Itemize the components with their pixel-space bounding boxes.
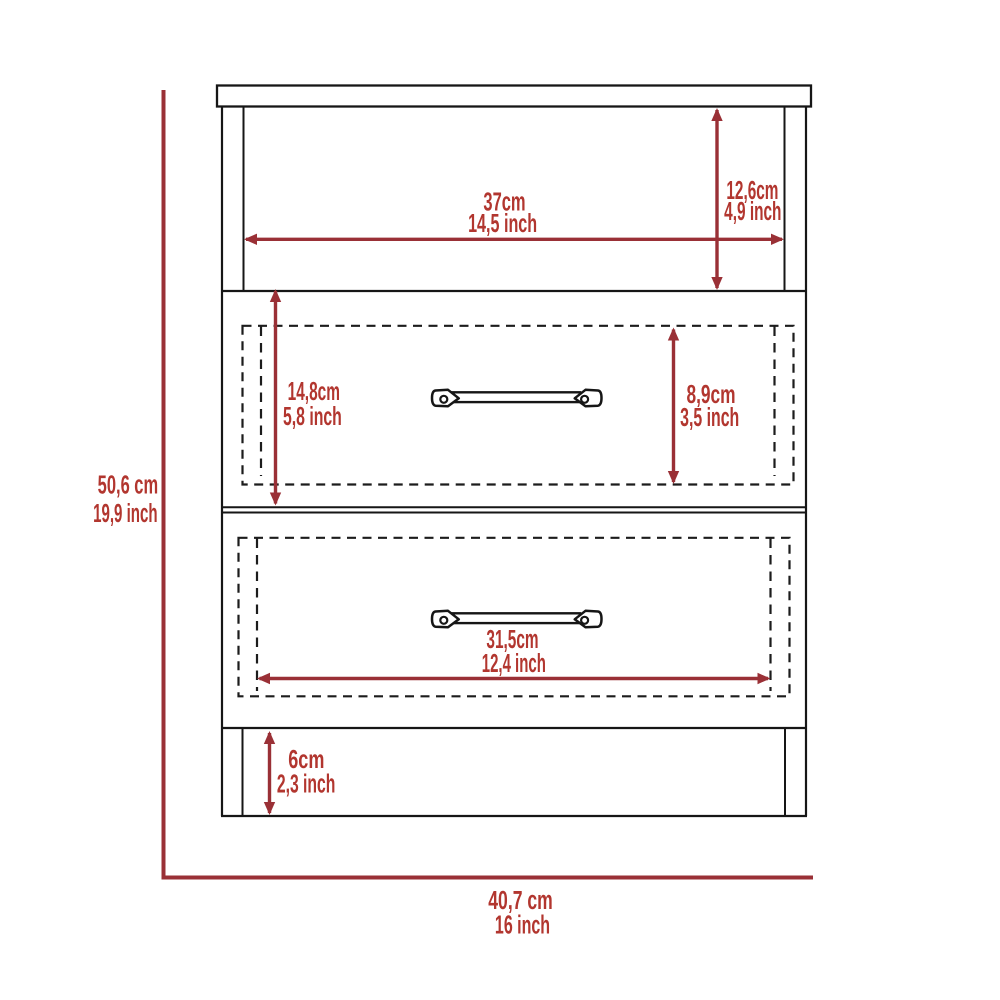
svg-text:3,5 inch: 3,5 inch	[680, 402, 739, 432]
svg-text:4,9 inch: 4,9 inch	[724, 197, 781, 226]
svg-text:2,3 inch: 2,3 inch	[277, 768, 336, 798]
svg-text:14,5 inch: 14,5 inch	[468, 208, 537, 238]
svg-text:16 inch: 16 inch	[495, 909, 550, 939]
svg-text:5,8 inch: 5,8 inch	[283, 401, 342, 431]
svg-text:50,6 cm: 50,6 cm	[98, 469, 158, 499]
svg-text:19,9 inch: 19,9 inch	[93, 499, 157, 528]
svg-text:12,4 inch: 12,4 inch	[482, 649, 546, 678]
